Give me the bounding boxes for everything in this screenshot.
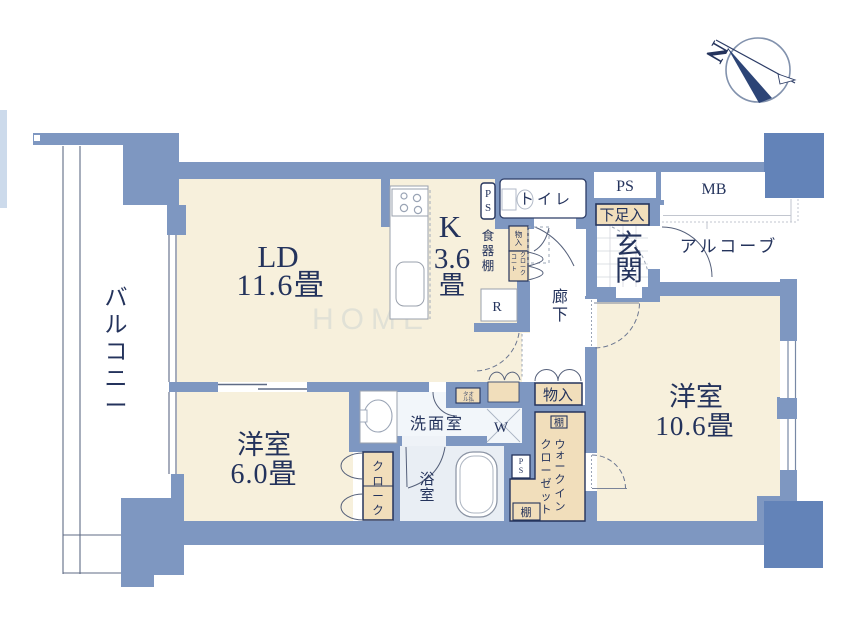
svg-text:室: 室 bbox=[419, 487, 434, 504]
svg-text:ン: ン bbox=[555, 501, 566, 513]
svg-text:ッ: ッ bbox=[541, 491, 552, 503]
svg-text:10.6畳: 10.6畳 bbox=[655, 411, 734, 441]
svg-text:アルコーブ: アルコーブ bbox=[680, 236, 778, 256]
svg-text:物入: 物入 bbox=[543, 387, 573, 404]
svg-text:K: K bbox=[439, 209, 462, 244]
svg-text:棚: 棚 bbox=[521, 505, 532, 519]
svg-text:入: 入 bbox=[515, 238, 523, 247]
svg-text:器: 器 bbox=[482, 244, 495, 258]
svg-text:P: P bbox=[485, 188, 491, 200]
svg-text:下足入: 下足入 bbox=[599, 207, 644, 224]
svg-text:浴: 浴 bbox=[419, 471, 434, 488]
svg-text:バ: バ bbox=[105, 285, 128, 310]
svg-text:イ: イ bbox=[555, 488, 566, 500]
svg-text:ー: ー bbox=[372, 491, 384, 503]
svg-text:ク: ク bbox=[520, 252, 526, 259]
svg-text:S: S bbox=[519, 466, 523, 475]
svg-text:ト: ト bbox=[541, 504, 552, 516]
svg-text:トイレ: トイレ bbox=[519, 192, 573, 208]
svg-text:S: S bbox=[485, 202, 491, 214]
svg-text:畳: 畳 bbox=[439, 271, 465, 300]
svg-text:ロ: ロ bbox=[541, 452, 552, 464]
svg-text:ー: ー bbox=[555, 461, 566, 473]
svg-text:ク: ク bbox=[520, 270, 526, 277]
svg-text:ゼ: ゼ bbox=[541, 477, 552, 490]
svg-text:廊: 廊 bbox=[552, 288, 568, 306]
svg-text:コ: コ bbox=[511, 254, 517, 261]
svg-text:洋室: 洋室 bbox=[669, 382, 723, 412]
svg-text:ク: ク bbox=[372, 460, 384, 473]
svg-text:ク: ク bbox=[541, 438, 552, 451]
svg-text:棚: 棚 bbox=[482, 258, 495, 273]
svg-text:洋室: 洋室 bbox=[237, 430, 291, 460]
svg-text:棚: 棚 bbox=[554, 416, 564, 429]
svg-text:ク: ク bbox=[372, 504, 384, 517]
svg-text:6.0畳: 6.0畳 bbox=[230, 459, 297, 490]
svg-text:PS: PS bbox=[616, 178, 634, 195]
svg-text:ル払: ル払 bbox=[463, 395, 475, 403]
svg-text:ク: ク bbox=[555, 473, 566, 486]
svg-text:ト: ト bbox=[511, 267, 517, 273]
svg-text:洗面室: 洗面室 bbox=[410, 415, 464, 433]
svg-text:下: 下 bbox=[552, 307, 568, 324]
svg-text:コ: コ bbox=[105, 339, 128, 364]
svg-text:ロ: ロ bbox=[372, 476, 384, 488]
svg-text:ー: ー bbox=[541, 465, 552, 477]
svg-text:ー: ー bbox=[105, 393, 128, 418]
svg-text:食: 食 bbox=[482, 228, 495, 243]
svg-text:MB: MB bbox=[702, 181, 727, 198]
svg-text:W: W bbox=[494, 420, 509, 436]
svg-text:R: R bbox=[492, 300, 502, 315]
svg-text:P: P bbox=[519, 457, 524, 466]
svg-text:ニ: ニ bbox=[105, 366, 128, 391]
svg-text:ォ: ォ bbox=[555, 449, 566, 461]
svg-text:ル: ル bbox=[105, 312, 128, 337]
svg-text:関: 関 bbox=[615, 256, 643, 287]
svg-text:11.6畳: 11.6畳 bbox=[237, 269, 326, 302]
